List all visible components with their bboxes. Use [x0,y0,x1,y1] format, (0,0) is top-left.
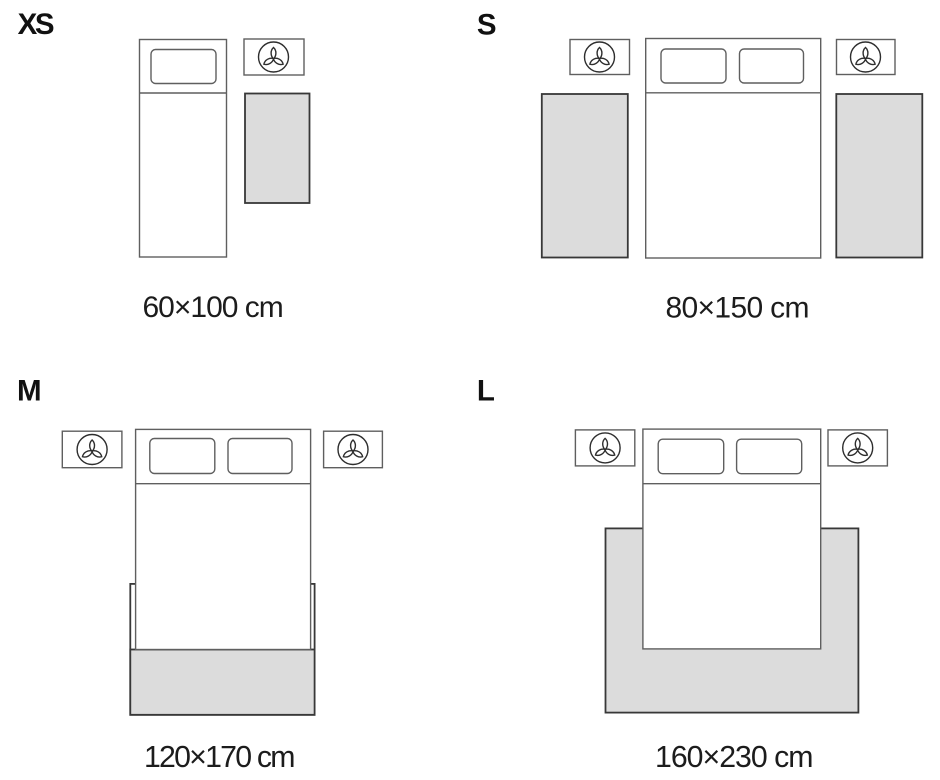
svg-text:L: L [477,374,495,407]
svg-text:120×170 cm: 120×170 cm [144,741,296,774]
svg-text:XS: XS [18,8,55,41]
svg-text:160×230 cm: 160×230 cm [655,741,814,774]
svg-text:80×150 cm: 80×150 cm [666,291,810,324]
svg-text:M: M [17,375,42,408]
svg-text:60×100 cm: 60×100 cm [143,291,284,324]
svg-text:S: S [477,8,497,41]
